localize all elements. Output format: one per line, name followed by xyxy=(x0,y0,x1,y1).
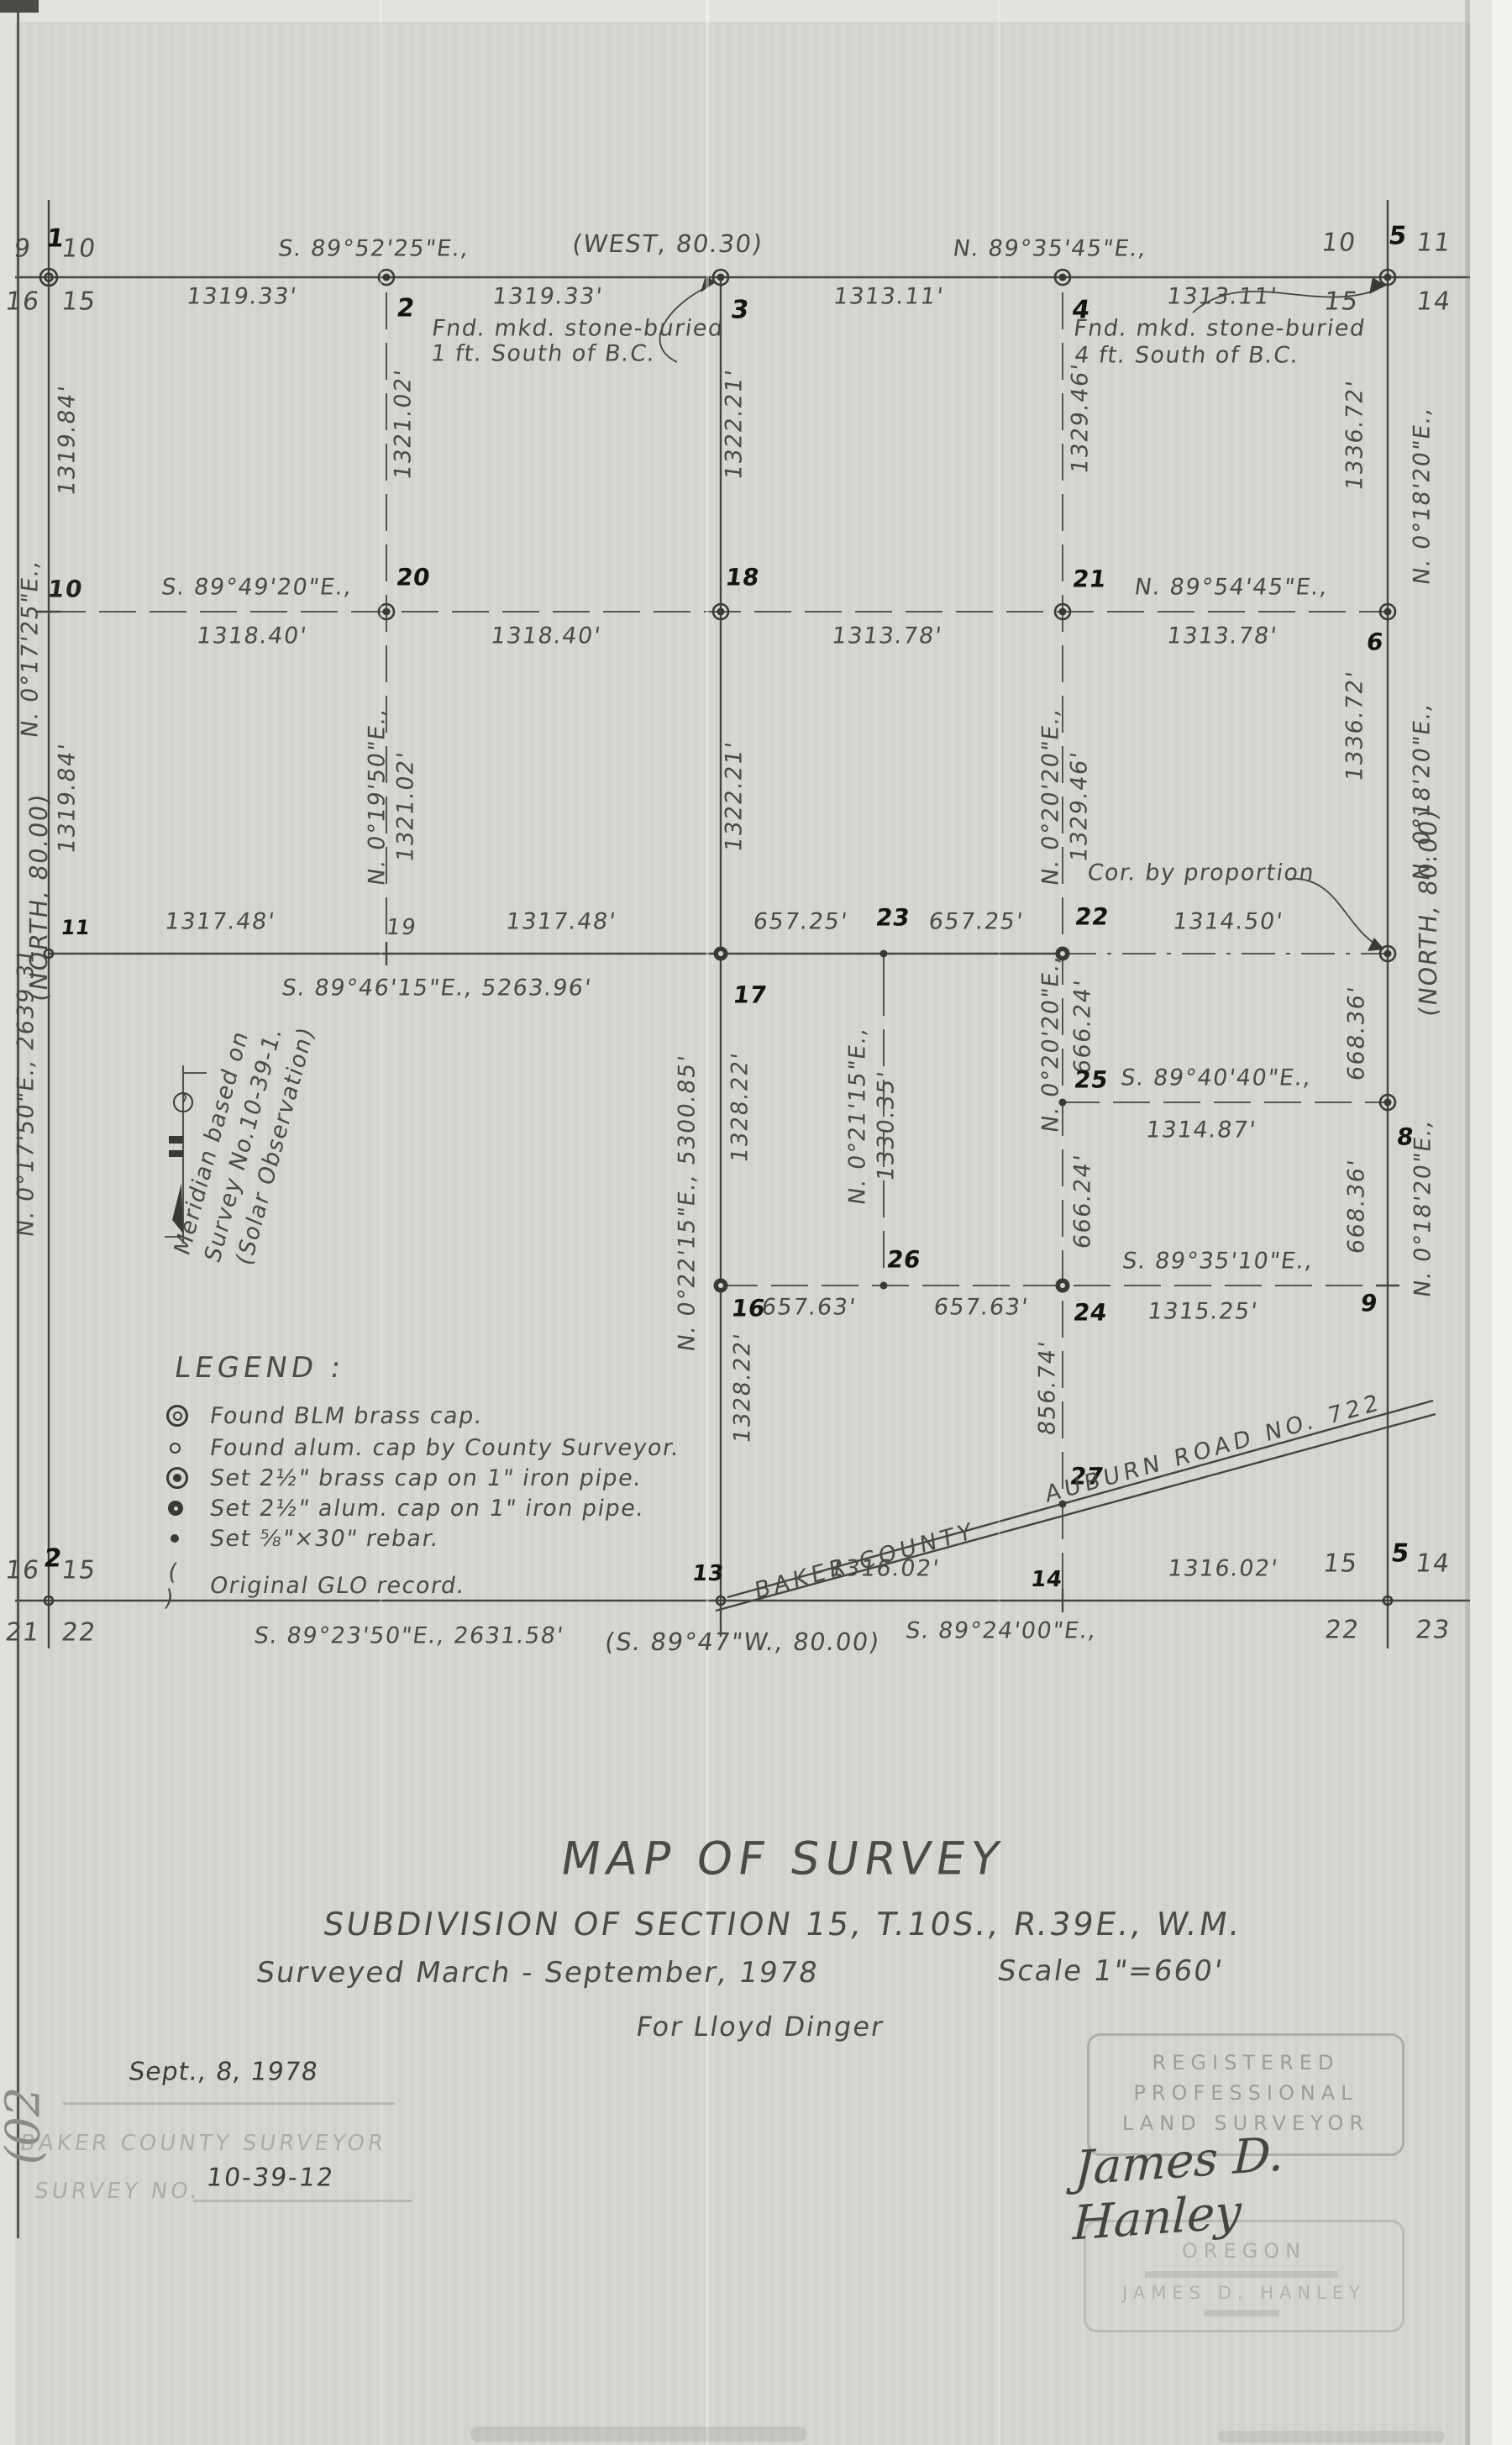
distance-label: 1313.11' xyxy=(832,284,945,310)
bearing-label: N. 0°21'15"E., xyxy=(845,1025,871,1207)
bearing-label: S. 89°52'25"E., xyxy=(276,236,471,262)
stamp-smudge xyxy=(1145,2271,1338,2278)
alum-symbol-icon xyxy=(166,1501,210,1516)
point-number: 24 xyxy=(1072,1299,1110,1327)
scan-streak xyxy=(380,0,382,2445)
point-number: 23 xyxy=(874,904,912,932)
distance-label: 1321.02' xyxy=(393,749,419,863)
survey-map-scan: S. 89°52'25"E.,1319.33'1319.33'(WEST, 80… xyxy=(0,0,1512,2445)
bearing-label: N. 0°20'20"E., xyxy=(1038,953,1064,1134)
distance-label: 1322.21' xyxy=(722,739,748,853)
stamp-smudge xyxy=(1204,2310,1279,2316)
glo-record-label: (NORTH, 80.00) xyxy=(1414,807,1442,1018)
client-name: For Lloyd Dinger xyxy=(634,2011,887,2043)
faint-stamp-line xyxy=(63,2102,395,2105)
distance-label: 1318.40' xyxy=(489,623,602,649)
distance-label: 657.25' xyxy=(752,909,850,935)
point-number: 13 xyxy=(690,1561,725,1586)
distance-label: 1319.84' xyxy=(55,383,81,497)
point-number: 21 xyxy=(1071,565,1109,593)
point-number: 22 xyxy=(1074,903,1111,931)
distance-label: 1330.35' xyxy=(874,1069,900,1182)
distance-label: 657.63' xyxy=(760,1295,858,1321)
glo-symbol-icon: ( ) xyxy=(166,1559,210,1612)
point-number: 14 xyxy=(1029,1567,1063,1592)
section-number: 21 xyxy=(3,1618,42,1648)
leader-arrow xyxy=(1369,277,1386,294)
bearing-label: N. 0°17'50"E., 2639.31 xyxy=(13,946,39,1238)
corner-note: Cor. by proportion xyxy=(1086,860,1317,886)
scan-corner-blob xyxy=(0,0,39,13)
monument-note: 1 ft. South of B.C. xyxy=(429,341,658,367)
distance-label: 1316.02' xyxy=(1166,1556,1279,1582)
point-number: 25 xyxy=(1073,1066,1110,1094)
filing-date: Sept., 8, 1978 xyxy=(127,2058,320,2087)
scan-bottom-smudge xyxy=(470,2427,806,2442)
brass-symbol-icon xyxy=(166,1467,210,1489)
distance-label: 666.24' xyxy=(1070,1153,1096,1251)
legend-item: ( )Original GLO record. xyxy=(166,1571,465,1600)
monument-note: Fnd. mkd. stone-buried xyxy=(430,316,726,342)
distance-label: 1336.72' xyxy=(1342,378,1368,492)
scan-right-band xyxy=(1470,0,1492,2445)
monument-note: 4 ft. South of B.C. xyxy=(1073,343,1301,369)
distance-label: 1328.22' xyxy=(730,1331,756,1444)
section-number: 15 xyxy=(1321,1549,1360,1579)
point-number: 18 xyxy=(724,564,762,592)
distance-label: 856.74' xyxy=(1035,1339,1061,1438)
scan-bottom-smudge xyxy=(1218,2431,1445,2442)
legend-item-label: Original GLO record. xyxy=(208,1573,468,1599)
distance-label: 1329.46' xyxy=(1067,749,1093,863)
point-number: 19 xyxy=(385,915,418,940)
stamp-line: REGISTERED xyxy=(1089,2051,1402,2074)
section-number: 11 xyxy=(1415,229,1453,258)
point-number: 26 xyxy=(885,1246,923,1274)
distance-label: 666.24' xyxy=(1070,978,1096,1076)
scan-top-margin xyxy=(0,0,1512,22)
section-number: 10 xyxy=(60,234,98,264)
section-number: 14 xyxy=(1415,287,1453,317)
bearing-label: N. 0°20'20"E., xyxy=(1038,706,1064,887)
bearing-label: S. 89°46'15"E., 5263.96' xyxy=(281,975,594,1002)
section-number: 22 xyxy=(1323,1616,1362,1645)
faint-stamp-underline xyxy=(193,2200,412,2202)
distance-label: 1336.72' xyxy=(1342,669,1368,782)
legend-item-label: Found alum. cap by County Surveyor. xyxy=(208,1435,682,1461)
distance-label: 1317.48' xyxy=(504,909,617,935)
distance-label: 1319.33' xyxy=(491,284,604,310)
distance-label: 1328.22' xyxy=(727,1050,753,1164)
distance-label: 1315.25' xyxy=(1146,1299,1259,1325)
bearing-label: N. 0°18'20"E., xyxy=(1410,1117,1436,1299)
distance-label: 1316.02' xyxy=(827,1556,941,1582)
legend-item-label: Set 2½" brass cap on 1" iron pipe. xyxy=(208,1465,644,1491)
distance-label: 1322.21' xyxy=(722,367,748,481)
margin-scribble: (02 xyxy=(0,2086,51,2164)
bearing-label: S. 89°23'50"E., 2631.58' xyxy=(253,1623,566,1649)
legend-item: Set ⅝"×30" rebar. xyxy=(166,1524,439,1553)
bearing-label: N. 0°17'25"E., xyxy=(18,558,44,739)
point-number: 17 xyxy=(732,981,769,1009)
bearing-label: S. 89°40'40"E., xyxy=(1119,1065,1314,1091)
section-number: 15 xyxy=(1322,287,1361,317)
bearing-label: N. 0°22'15"E., 5300.85' xyxy=(675,1053,701,1353)
survey-no-stamp-faint: SURVEY NO. xyxy=(33,2179,202,2204)
point-number: 20 xyxy=(395,564,433,592)
distance-label: 1319.33' xyxy=(185,284,298,310)
section-number: 15 xyxy=(60,287,98,317)
section-number: 15 xyxy=(60,1556,98,1585)
stamp-line: PROFESSIONAL xyxy=(1089,2081,1402,2105)
distance-label: 657.63' xyxy=(932,1295,1031,1321)
distance-label: 1314.50' xyxy=(1171,909,1284,935)
legend-item-label: Found BLM brass cap. xyxy=(208,1403,486,1429)
distance-label: 668.36' xyxy=(1344,1158,1370,1256)
map-subtitle: SUBDIVISION OF SECTION 15, T.10S., R.39E… xyxy=(321,1906,1246,1943)
legend-item: Found BLM brass cap. xyxy=(166,1401,483,1430)
bearing-label: N. 0°18'20"E., xyxy=(1410,405,1436,586)
legend-item: Set 2½" alum. cap on 1" iron pipe. xyxy=(166,1494,645,1522)
legend-item-label: Set ⅝"×30" rebar. xyxy=(208,1526,442,1552)
bearing-label: N. 89°35'45"E., xyxy=(952,236,1149,262)
county-stamp-faint: BAKER COUNTY SURVEYOR xyxy=(18,2131,388,2156)
surveyed-date: Surveyed March - September, 1978 xyxy=(254,1956,822,1990)
legend-title: LEGEND : xyxy=(172,1351,347,1385)
section-number: 23 xyxy=(1414,1616,1452,1645)
legend-item: Found alum. cap by County Surveyor. xyxy=(166,1433,680,1462)
point-number: 11 xyxy=(60,916,92,939)
rebar-symbol-icon xyxy=(166,1534,210,1543)
section-number: 16 xyxy=(3,1556,42,1585)
bearing-label: S. 89°49'20"E., xyxy=(160,575,354,601)
map-scale: Scale 1"=660' xyxy=(995,1954,1226,1988)
distance-label: 1313.78' xyxy=(1165,623,1278,649)
bearing-label: S. 89°24'00"E., xyxy=(904,1618,1099,1644)
distance-label: 1318.40' xyxy=(195,623,308,649)
distance-label: 1321.02' xyxy=(391,367,417,481)
section-number: 16 xyxy=(3,287,42,317)
map-title: MAP OF SURVEY xyxy=(557,1832,1008,1885)
section-number: 10 xyxy=(1320,229,1358,258)
leader-cor-by-proportion xyxy=(1289,879,1376,944)
monument-note: Fnd. mkd. stone-buried xyxy=(1072,316,1368,342)
legend-item: Set 2½" brass cap on 1" iron pipe. xyxy=(166,1464,642,1492)
stamp-line: JAMES D. HANLEY xyxy=(1086,2283,1402,2303)
distance-label: 657.25' xyxy=(927,909,1026,935)
distance-label: 1319.84' xyxy=(55,741,81,854)
alumfound-symbol-icon xyxy=(166,1443,210,1454)
bearing-label: N. 89°54'45"E., xyxy=(1133,575,1331,601)
section-number: 22 xyxy=(60,1618,98,1648)
section-number: 14 xyxy=(1414,1549,1452,1579)
bearing-label: N. 0°19'50"E., xyxy=(365,706,391,887)
scan-streak xyxy=(706,0,709,2445)
glo-record-label: (S. 89°47"W., 80.00) xyxy=(603,1627,882,1656)
point-number: 10 xyxy=(46,576,86,603)
distance-label: 1329.46' xyxy=(1068,361,1094,475)
blm-symbol-icon xyxy=(166,1405,210,1427)
scan-right-white xyxy=(1492,0,1512,2445)
distance-label: 1317.48' xyxy=(163,909,276,935)
glo-record-label: (WEST, 80.30) xyxy=(570,229,764,258)
scan-streak xyxy=(998,0,1000,2445)
survey-file-number: 10-39-12 xyxy=(204,2164,336,2193)
glo-parentheses: ( ) xyxy=(162,1559,214,1612)
distance-label: 668.36' xyxy=(1344,985,1370,1083)
surveyor-signature: James D. Hanley xyxy=(1072,2122,1368,2252)
legend-item-label: Set 2½" alum. cap on 1" iron pipe. xyxy=(208,1496,648,1522)
distance-label: 1313.78' xyxy=(830,623,943,649)
bearing-label: S. 89°35'10"E., xyxy=(1121,1249,1315,1275)
distance-label: 1313.11' xyxy=(1165,284,1278,310)
distance-label: 1314.87' xyxy=(1144,1117,1257,1144)
